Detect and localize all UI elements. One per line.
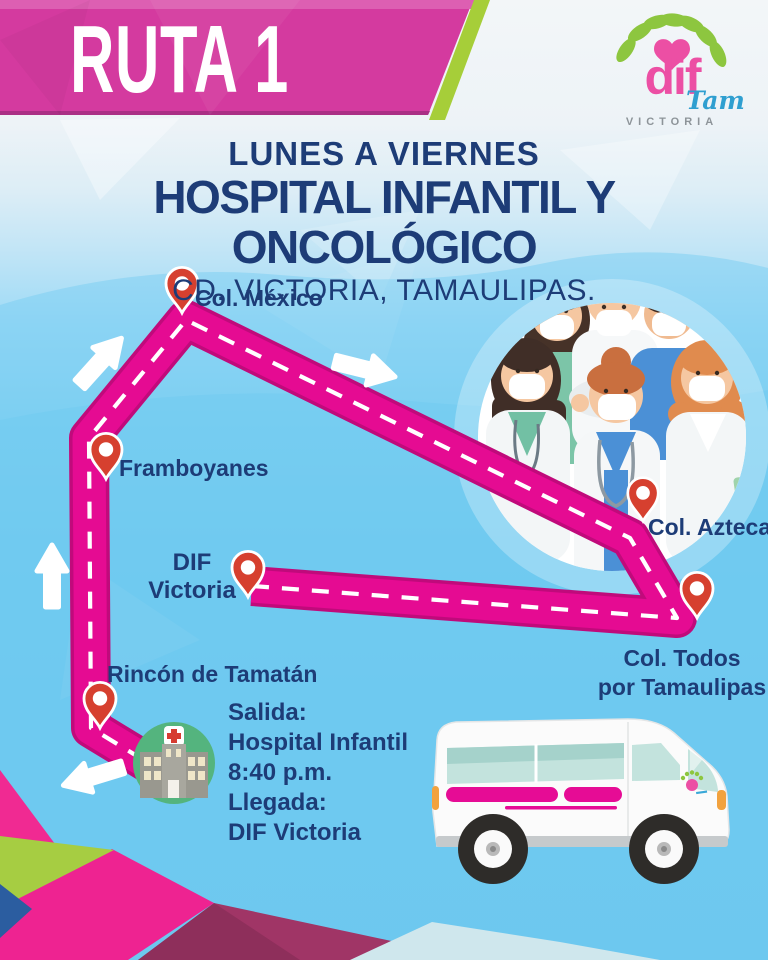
van-front-marker (717, 790, 726, 810)
van-front-wheel (629, 814, 699, 884)
dif-tam-victoria-logo: dif Tam VICTORIA (592, 10, 752, 140)
stop-label-rincon-de-tamatan: Rincón de Tamatán (107, 661, 317, 688)
salida-place: Hospital Infantil (228, 728, 408, 758)
salida-label: Salida: (228, 698, 408, 728)
title-block: LUNES A VIERNES HOSPITAL INFANTIL Y ONCO… (0, 136, 768, 308)
title-main: HOSPITAL INFANTIL Y ONCOLÓGICO (0, 172, 768, 272)
title-city: CD. VICTORIA, TAMAULIPAS. (0, 274, 768, 308)
route-poster: RUTA 1 dif Tam VICTORIA LUNES A VIERNES … (0, 0, 768, 960)
stop-label-col-azteca: Col. Azteca (648, 514, 768, 541)
schedule-block: Salida: Hospital Infantil 8:40 p.m. Lleg… (228, 698, 408, 848)
stop-label-framboyanes: Framboyanes (119, 455, 269, 482)
van-rear-marker (432, 786, 439, 810)
llegada-place: DIF Victoria (228, 818, 408, 848)
van-rear-wheel (458, 814, 528, 884)
llegada-label: Llegada: (228, 788, 408, 818)
stop-label-dif-victoria: DIF Victoria (146, 549, 238, 605)
logo-victoria-text: VICTORIA (592, 116, 752, 128)
title-days: LUNES A VIERNES (0, 136, 768, 172)
stop-label-col-mexico: Col. México (195, 285, 323, 312)
hospital-icon (133, 722, 215, 804)
salida-time: 8:40 p.m. (228, 758, 408, 788)
logo-tam-text: Tam (686, 86, 745, 115)
route-title: RUTA 1 (70, 8, 289, 112)
van-pink-stripe (446, 787, 558, 802)
stop-label-col-todos: Col. Todos por Tamaulipas (592, 644, 768, 702)
